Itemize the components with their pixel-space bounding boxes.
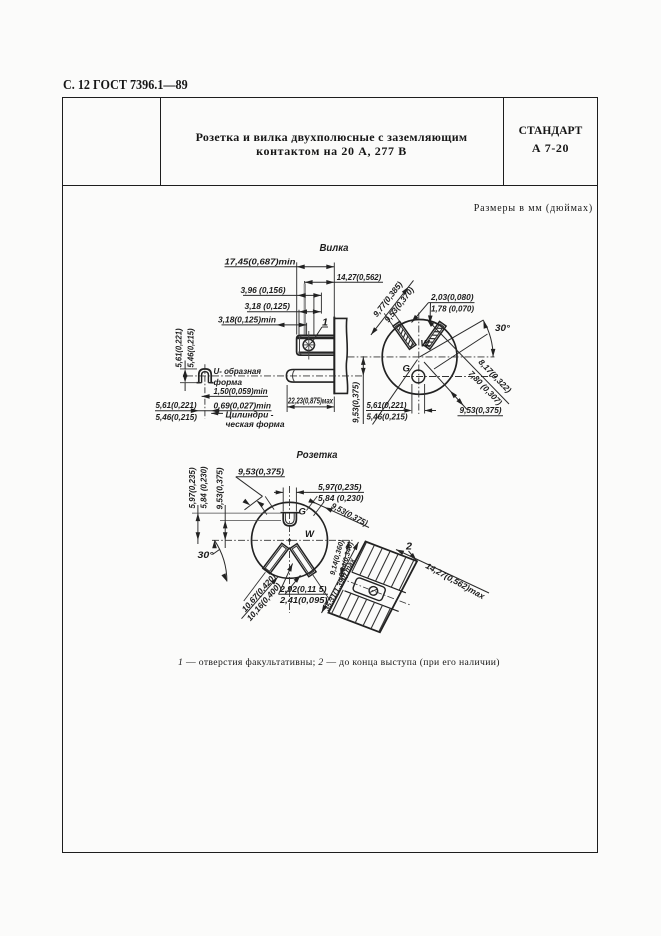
svg-text:9,53(0,375): 9,53(0,375) [460,405,502,415]
svg-text:3,18 (0,125): 3,18 (0,125) [245,301,291,311]
svg-text:G: G [403,364,411,375]
svg-text:5,61(0,221): 5,61(0,221) [367,400,407,410]
svg-text:2,41(0,095): 2,41(0,095) [279,595,328,605]
svg-text:22,23(0,875)мах: 22,23(0,875)мах [287,396,333,405]
svg-text:ческая форма: ческая форма [226,419,285,429]
svg-text:14,27(0,562)max: 14,27(0,562)max [424,561,487,602]
svg-text:5,46(0,215): 5,46(0,215) [185,328,195,367]
svg-text:Цилиндри -: Цилиндри - [226,409,274,419]
svg-text:2,03(0,080): 2,03(0,080) [430,292,474,302]
svg-text:14,27(0,562): 14,27(0,562) [337,272,382,282]
svg-text:Вилка: Вилка [320,242,349,254]
svg-text:5,84 (0,230): 5,84 (0,230) [318,493,364,503]
svg-text:Розетка: Розетка [297,449,338,461]
svg-text:9,53(0,375): 9,53(0,375) [330,500,370,528]
svg-text:W: W [305,529,315,540]
svg-text:5,97(0,235): 5,97(0,235) [187,467,197,508]
svg-text:17,45(0,687)min: 17,45(0,687)min [225,256,296,266]
svg-text:30°: 30° [495,323,510,334]
svg-text:5,46(0,215): 5,46(0,215) [367,412,408,422]
svg-text:5,84 (0,230): 5,84 (0,230) [199,466,209,508]
svg-text:U- образная: U- образная [214,366,262,376]
svg-text:1,50(0,059)min: 1,50(0,059)min [214,386,268,396]
svg-text:3,96 (0,156): 3,96 (0,156) [241,285,286,295]
svg-text:5,97(0,235): 5,97(0,235) [318,482,362,492]
svg-text:форма: форма [214,377,243,387]
svg-text:9,53(0,375): 9,53(0,375) [351,382,361,423]
svg-text:9,53(0,375): 9,53(0,375) [214,467,224,509]
svg-text:2: 2 [405,541,412,553]
svg-text:3,18(0,125)min: 3,18(0,125)min [218,314,276,324]
svg-text:1: 1 [322,317,328,329]
svg-text:5,46(0,215): 5,46(0,215) [156,412,198,422]
svg-text:G: G [299,507,307,518]
svg-text:1,78 (0,070): 1,78 (0,070) [431,304,474,314]
svg-text:9,53(0,375): 9,53(0,375) [238,466,284,476]
svg-text:5,61(0,221): 5,61(0,221) [156,400,197,410]
svg-text:5,61(0,221): 5,61(0,221) [174,328,184,367]
svg-text:W: W [421,339,431,350]
svg-text:30°: 30° [198,550,214,561]
